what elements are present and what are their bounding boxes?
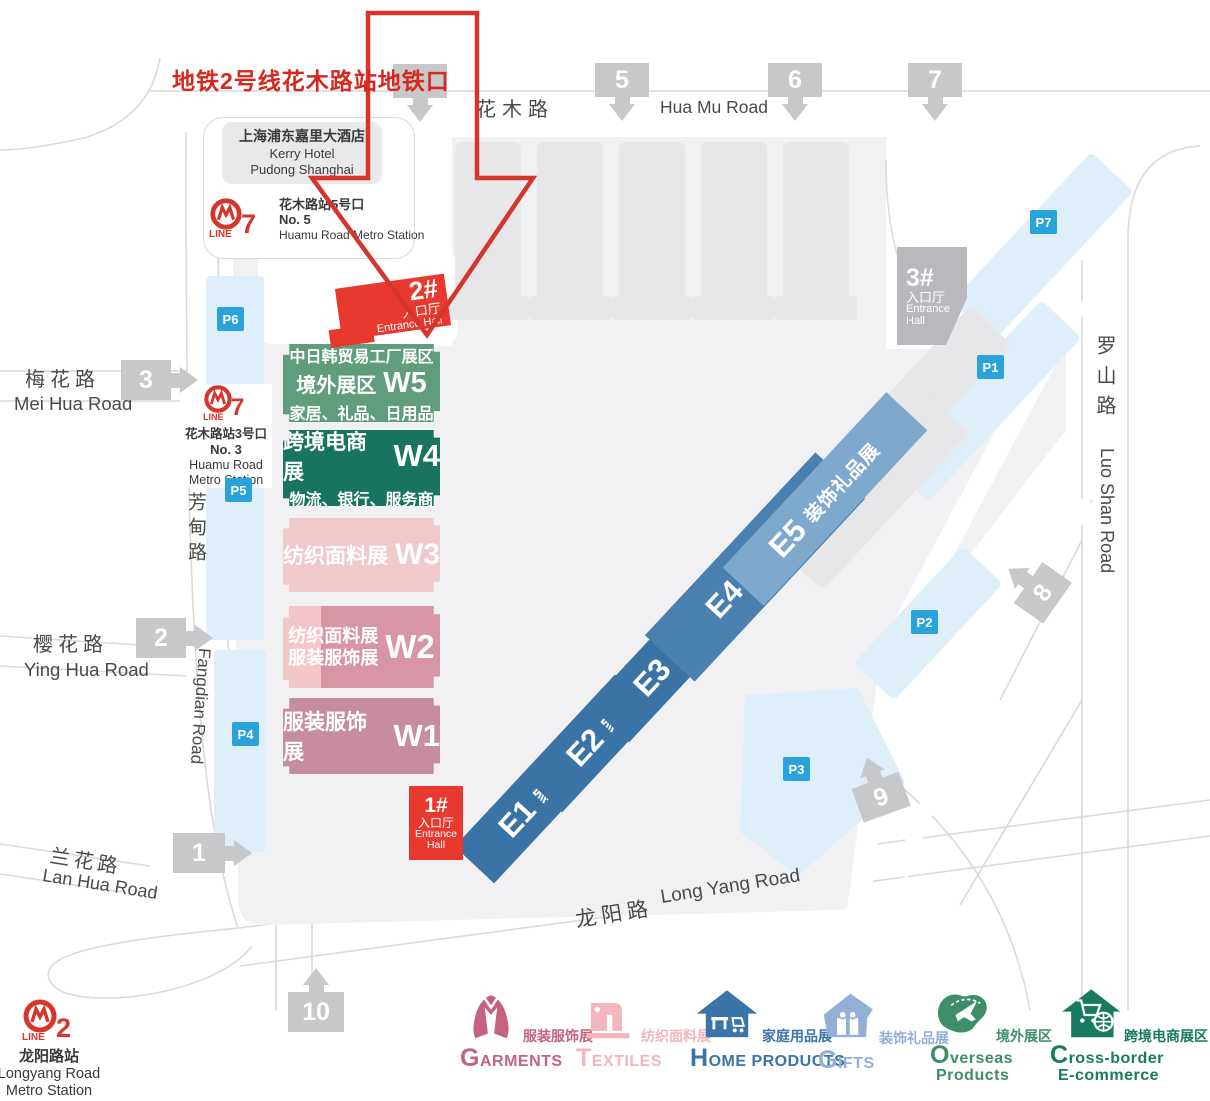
legend-crossborder-rest: ross-border (1069, 1050, 1164, 1067)
gate-10-arrow (309, 985, 324, 992)
road-label-huamu-zh: 花木路 (476, 93, 554, 122)
legend-gifts-en: GIFTS (818, 1046, 875, 1075)
legend-textiles-en: TEXTILES (576, 1044, 662, 1073)
road-label-luoshan-en: Luo Shan Road (1096, 448, 1117, 573)
legend-crossborder-line2: E-commerce (1058, 1068, 1164, 1085)
hall-w4-line1: 跨境电商展 (283, 426, 387, 486)
road-label-luoshan-zh: 罗山路 (1090, 335, 1119, 425)
line-number: 7 (231, 394, 244, 423)
gate-6-arrow (788, 97, 803, 104)
entrance-hall-1: 1# 入口厅 Entrance Hall (409, 786, 463, 860)
hall-w5: 中日韩贸易工厂展区 境外展区 W5 家居、礼品、日用品 (283, 344, 440, 422)
road-label-meihua-en: Mei Hua Road (14, 393, 132, 415)
home-products-icon (694, 988, 760, 1046)
gate-10: 10 (288, 968, 344, 1032)
kerry-hotel-label: 上海浦东嘉里大酒店 Kerry Hotel Pudong Shanghai (222, 122, 382, 184)
gate-10-number: 10 (288, 992, 344, 1032)
road-label-huamu-en: Hua Mu Road (660, 97, 768, 118)
legend-garments-rest: ARMENTS (480, 1053, 563, 1070)
line2-station-en2: Metro Station (6, 1083, 92, 1100)
exit5-label-en: No. 5 (279, 212, 424, 227)
hall-w3-line1: 纺织面料展 (283, 540, 388, 570)
legend-gifts-rest: IFTS (838, 1055, 875, 1072)
line-word: LINE (209, 229, 232, 240)
gate-7-number: 7 (908, 63, 962, 97)
gate-1-arrowhead (234, 840, 252, 866)
legend-overseas-rest: verseas (950, 1050, 1013, 1067)
legend-gifts-initial: G (818, 1046, 838, 1074)
parking-p6: P6 (217, 307, 244, 331)
road-label-meihua-zh: 梅花路 (25, 363, 100, 392)
legend-overseas-en: Overseas Products (930, 1042, 1013, 1085)
gate-7-arrow (928, 97, 943, 104)
hall-w5-line3: 家居、礼品、日用品 (289, 400, 433, 424)
hall-w2-id: W2 (385, 628, 435, 666)
road-label-yinghua-zh: 樱花路 (33, 628, 108, 657)
entrance-1-number: 1# (424, 795, 447, 817)
overseas-products-icon (932, 986, 992, 1044)
hall-e1-id: E1 (491, 793, 543, 845)
hotel-name-zh: 上海浦东嘉里大酒店 (239, 128, 365, 146)
legend-overseas-initial: O (930, 1041, 950, 1069)
gifts-icon (814, 988, 878, 1046)
exit3-label-zh: 花木路站3号口 (185, 427, 267, 442)
hall-w1-line1: 服装服饰展 (283, 706, 387, 766)
parking-p5: P5 (225, 478, 252, 502)
gate-2-arrow (186, 631, 195, 646)
shanghai-metro-icon (203, 384, 233, 414)
hall-w5-line2: 境外展区 (296, 369, 376, 398)
metro-line7-logo: LINE 7 (201, 384, 251, 424)
line-number: 2 (56, 1012, 71, 1044)
gate-3: 3 (121, 360, 198, 400)
gate-2-arrowhead (195, 625, 213, 651)
gate-5-arrow (615, 97, 630, 104)
exit3-station-en1: Huamu Road (189, 458, 263, 473)
hall-w2: 纺织面料展 服装服饰展 W2 (283, 606, 440, 688)
hotel-name-en2: Pudong Shanghai (250, 162, 353, 178)
hotel-name-en1: Kerry Hotel (269, 146, 334, 162)
road-label-fangdian-zh: 芳甸路 (182, 492, 209, 567)
gate-6-number: 6 (768, 63, 822, 97)
metro-line7-logo: LINE 7 (209, 197, 271, 241)
gate-7: 7 (908, 63, 962, 121)
gate-10-arrowhead (303, 968, 329, 985)
legend-home-initial: H (690, 1044, 709, 1072)
gate-6: 6 (768, 63, 822, 121)
gate-3-number: 3 (121, 360, 171, 400)
gate-5-number: 5 (595, 63, 649, 97)
textiles-icon (578, 990, 638, 1046)
parking-p7: P7 (1030, 210, 1057, 234)
expo-map: 上海浦东嘉里大酒店 Kerry Hotel Pudong Shanghai LI… (0, 0, 1210, 1080)
hall-w5-id: W5 (383, 367, 427, 400)
gate-2-number: 2 (136, 618, 186, 658)
callout-title: 地铁2号线花木路站地铁口 (172, 62, 450, 96)
gate-5: 5 (595, 63, 649, 121)
legend-crossborder-initial: C (1050, 1041, 1069, 1069)
metro-line2-logo: LINE 2 (20, 998, 78, 1044)
gate-2: 2 (136, 618, 213, 658)
shanghai-metro-icon (209, 197, 243, 231)
parking-p2: P2 (911, 610, 938, 634)
gate-3-arrowhead (180, 367, 198, 393)
legend-garments-initial: G (460, 1044, 480, 1072)
hall-w4-id: W4 (394, 438, 441, 474)
legend-garments-en: GARMENTS (460, 1044, 563, 1073)
gate-7-arrowhead (922, 104, 948, 121)
exit5-label-zh: 花木路站5号口 (279, 197, 424, 212)
line-word: LINE (22, 1032, 45, 1044)
metro-exit-arrowhead (407, 105, 433, 122)
hall-w5-line1: 中日韩贸易工厂展区 (289, 343, 433, 367)
road-label-yinghua-en: Ying Hua Road (24, 659, 149, 681)
metro-line7-exit5: LINE 7 花木路站5号口 No. 5 Huamu Road Metro St… (209, 197, 424, 242)
legend-overseas-line2: Products (936, 1068, 1013, 1085)
gate-1-arrow (225, 846, 234, 861)
exit3-label-en: No. 3 (210, 442, 242, 458)
hall-w3-id: W3 (395, 538, 440, 572)
hall-w1: 服装服饰展 W1 (283, 698, 440, 774)
hall-w3: 纺织面料展 W3 (283, 518, 440, 592)
gate-3-arrow (171, 373, 180, 388)
entrance-3-zh: 入口厅 (906, 291, 967, 305)
hall-w4: 跨境电商展 W4 物流、银行、服务商 (283, 430, 440, 506)
line-word: LINE (203, 412, 224, 423)
metro-line2-longyang: LINE 2 龙阳路站 Longyang Road Metro Station (0, 998, 108, 1101)
gate-1: 1 (173, 833, 252, 873)
hall-w1-id: W1 (394, 718, 441, 754)
shanghai-metro-icon (22, 998, 58, 1034)
hall-w2-line2: 服装服饰展 (288, 647, 378, 670)
line2-station-en1: Longyang Road (0, 1066, 100, 1083)
line2-station-zh: 龙阳路站 (19, 1048, 79, 1066)
parking-p4: P4 (232, 722, 259, 746)
legend-textiles-initial: T (576, 1044, 592, 1072)
hall-e5-id: E5 (762, 513, 814, 565)
garments-icon (462, 990, 520, 1046)
crossborder-ecommerce-icon (1056, 986, 1122, 1044)
exit5-station-en: Huamu Road Metro Station (279, 228, 424, 242)
hall-e2-id: E2 (559, 722, 611, 774)
gate-5-arrowhead (609, 104, 635, 121)
legend-textiles-rest: EXTILES (592, 1053, 662, 1070)
gate-1-number: 1 (173, 833, 225, 873)
hall-w2-line1: 纺织面料展 (288, 625, 378, 648)
parking-p3: P3 (783, 757, 810, 781)
line-number: 7 (241, 209, 256, 240)
gate-6-arrowhead (782, 104, 808, 121)
entrance-3-number: 3# (906, 265, 967, 291)
legend-crossborder-en: Cross-border E-commerce (1050, 1042, 1164, 1085)
metro-exit-arrow (413, 98, 428, 105)
entrance-1-en2: Hall (427, 840, 445, 851)
parking-p1: P1 (977, 355, 1004, 379)
